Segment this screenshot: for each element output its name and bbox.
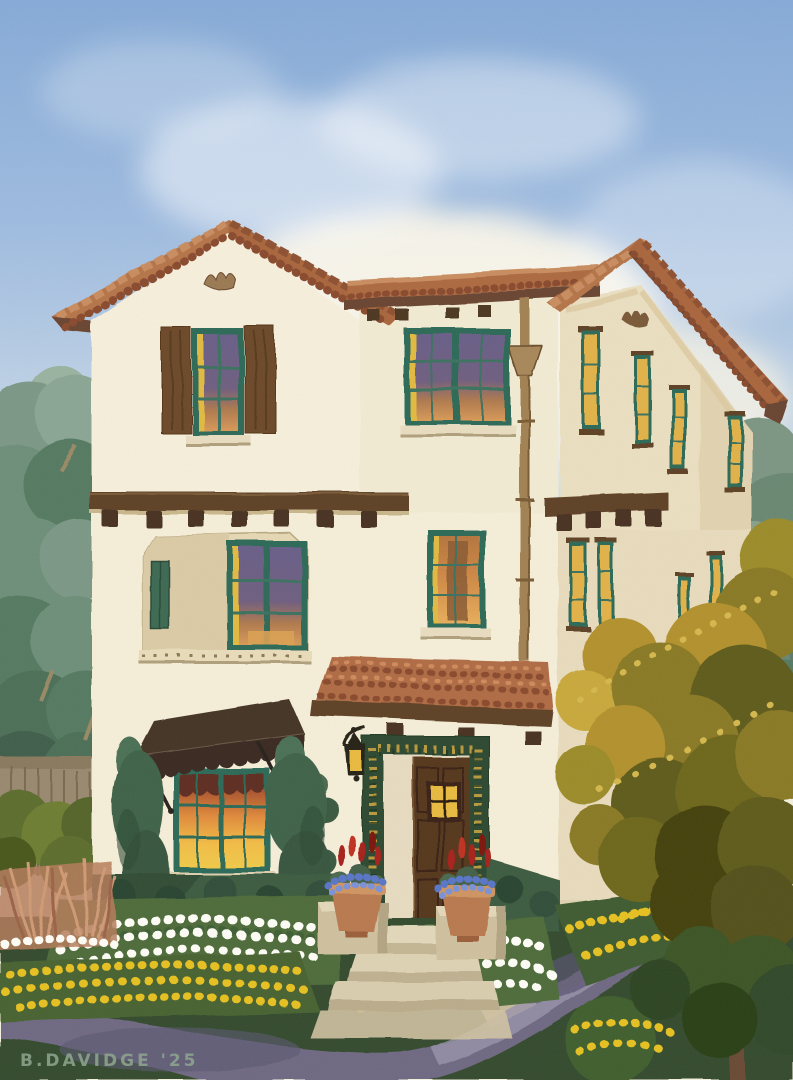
watercolor-painting: B.DAVIDGE '25 <box>0 0 793 1080</box>
paper-texture <box>0 0 793 1080</box>
artist-signature: B.DAVIDGE '25 <box>20 1051 198 1071</box>
painting-canvas: B.DAVIDGE '25 <box>0 0 793 1080</box>
